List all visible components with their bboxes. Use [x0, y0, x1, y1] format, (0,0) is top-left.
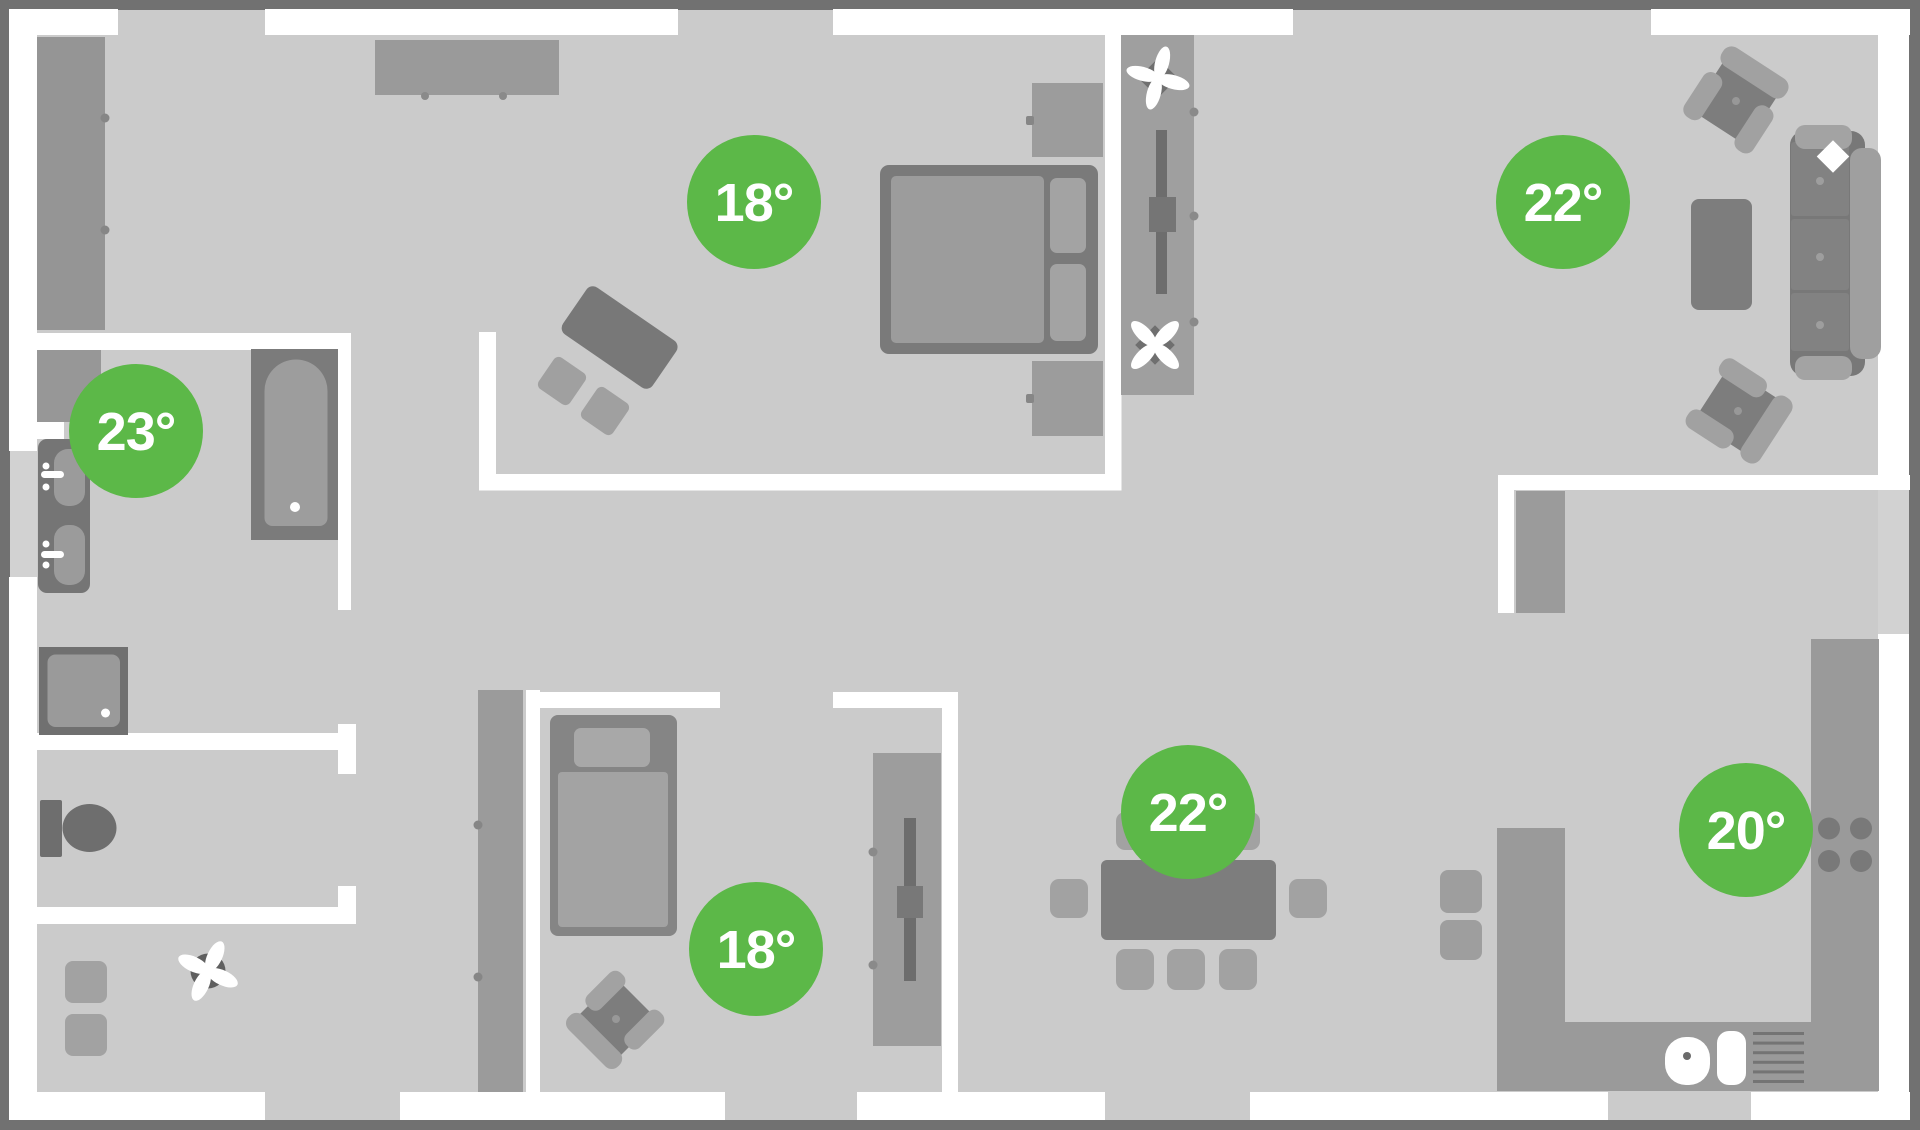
svg-text:22°: 22° [1524, 173, 1603, 233]
svg-text:23°: 23° [97, 402, 176, 462]
svg-text:22°: 22° [1149, 783, 1228, 843]
svg-text:20°: 20° [1707, 801, 1786, 861]
svg-text:18°: 18° [715, 173, 794, 233]
svg-text:18°: 18° [717, 920, 796, 980]
